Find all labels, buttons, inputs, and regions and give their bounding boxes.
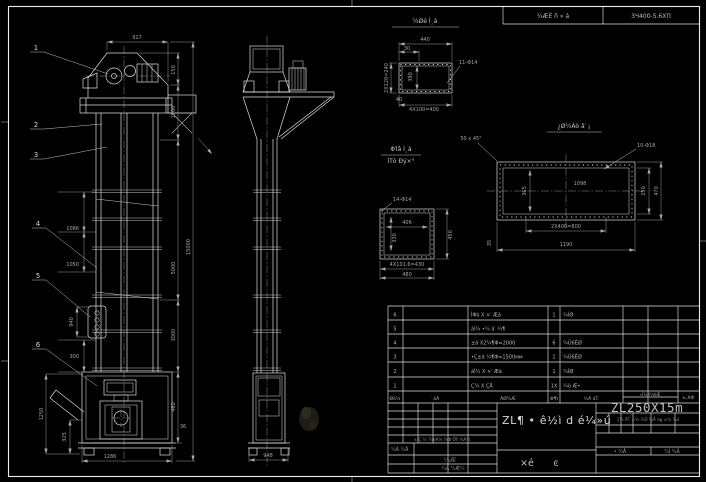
dim-a-30: 30 xyxy=(404,46,410,52)
table-row: 6 ÌΦò X ×′ Æá 1 ¼ÌØ xyxy=(393,312,573,319)
approval-stamp: ¼Æ xyxy=(444,456,457,464)
row3-no: 3 xyxy=(393,355,396,361)
balloon-3: 3 xyxy=(34,151,38,159)
detail-a-title: ½Øé Ì¸á xyxy=(413,18,438,25)
design-label: ¼Ã ¼Å xyxy=(391,446,409,453)
detail-b-title-1: ΦΊâ Ì¸á xyxy=(390,146,412,153)
sheet-label-1: • ¼Å xyxy=(614,448,627,455)
dim-150: 150 xyxy=(171,65,177,75)
col-header-name: ÃØ¼Æ xyxy=(500,395,516,402)
approval-stamp-2: ¼Ã ¼Æ¼ xyxy=(441,465,465,472)
dim-15000: 15000 xyxy=(186,239,192,255)
detail-b-title-2: ÌΤò Ðý×° xyxy=(387,158,414,165)
dim-a-4x100: 4X100=400 xyxy=(409,107,439,113)
cad-sheet: ¼ÆÈ ñ » á 3Ч400-5.6ΧΠ xyxy=(0,0,706,482)
dim-300: 300 xyxy=(69,354,79,360)
row1-qty: 1X xyxy=(551,384,558,390)
col-header-material: ¾Ã áΤ xyxy=(584,395,599,402)
dim-a-2x120: 2X120=240 xyxy=(384,63,390,93)
dim-a-440: 440 xyxy=(420,37,430,43)
row5-name: áÌ¼ •¼ á′ ¼¶ xyxy=(471,326,505,333)
row4-name: ±á X2¼¶Φ=2000 xyxy=(471,340,515,347)
row1-no: 1 xyxy=(393,384,396,390)
col-header-weight: »Ì¼X¼ÞÆ xyxy=(640,392,661,397)
balloon-2: 2 xyxy=(34,121,38,129)
title-block: ±ÏÇ ¼′ ¼ÞÁ¼ ¼Φ ÕÝ ¼Ã¼ ¼Ã ¼Å ¼Æ ¼Ã ¼Æ¼ ZL… xyxy=(388,400,699,473)
row6-qty: 1 xyxy=(552,313,555,319)
dim-1500: 1500 xyxy=(171,106,177,119)
drawing-subtitle-1: ×é xyxy=(520,458,534,469)
dim-325: 325 xyxy=(62,432,68,442)
table-row: 1 Ç¼ X ÇÅ 1X ¼ô Æ• xyxy=(393,383,580,390)
dim-a-holes: 11-Φ14 xyxy=(459,60,477,66)
table-row: 3 •Ç±á ¼¶Φ=1500мм 1 ¼Ü6ÊØ xyxy=(393,353,581,361)
watermark-stain xyxy=(299,407,319,431)
detail-flange-plate: ½Øé Ì¸á 440 30 2X120=240 390 40 4X100=40… xyxy=(384,18,477,113)
row2-material: ¼ÌØ xyxy=(563,368,573,375)
balloon-5: 5 xyxy=(36,272,40,280)
row5-no: 5 xyxy=(393,327,396,333)
row6-name: ÌΦò X ×′ Æá xyxy=(471,312,501,319)
drawing-title: ZL¶ • ê½ì d é¼»ú xyxy=(502,414,611,427)
table-row: 4 ±á X2¼¶Φ=2000 6 ¼Ü6ÊØ xyxy=(393,339,581,347)
dim-940: 940 xyxy=(69,317,75,327)
row3-qty: 1 xyxy=(552,355,555,361)
detail-casing-section: ¿Ø½Àò â′ ¡ 50 x 45° 10-Φ18 1098 365 250 … xyxy=(460,123,663,252)
front-view-dimensions: 917 150 1500 5000 3000 460 36 15000 1086… xyxy=(39,35,195,463)
balloon-1: 1 xyxy=(34,44,38,52)
dim-5000: 5000 xyxy=(171,262,177,275)
dim-1250: 1250 xyxy=(39,408,45,421)
dim-b-406: 406 xyxy=(402,220,412,226)
dim-948: 948 xyxy=(263,453,273,459)
row3-material: ¼Ü6ÊØ xyxy=(563,353,582,361)
dim-c-470: 470 xyxy=(654,186,660,196)
dim-b-holes: 14-Φ14 xyxy=(393,197,411,203)
row4-no: 4 xyxy=(393,341,396,347)
dim-c-chamfer: 50 x 45° xyxy=(460,136,482,142)
dim-460: 460 xyxy=(171,402,177,412)
row6-material: ¼ÌØ xyxy=(563,312,573,319)
row1-name: Ç¼ X ÇÅ xyxy=(471,383,493,390)
dim-a-390: 390 xyxy=(408,72,414,82)
dim-36: 36 xyxy=(180,424,186,430)
parts-table: Øò¼ ′ áÃ ÃØ¼Æ Φ¶ì ¾Ã áΤ »Ì¼X¼ÞÆ ±,XΦ 6 Ì… xyxy=(388,306,699,473)
row2-name: áÌ¼ X ×′ Æá xyxy=(471,368,502,375)
col-header-remark: ±,XΦ xyxy=(682,395,694,401)
revision-row: ±ÏÇ ¼′ ¼ÞÁ¼ ¼Φ ÕÝ ¼Ã¼ xyxy=(414,437,471,442)
detail-c-title: ¿Ø½Àò â′ ¡ xyxy=(558,123,591,130)
dim-c-365: 365 xyxy=(522,186,528,196)
dim-1050: 1050 xyxy=(66,262,79,268)
dim-b-480: 480 xyxy=(402,272,412,278)
drawing-model-number: ZL250X15m xyxy=(611,400,683,415)
dim-b-450: 450 xyxy=(448,230,454,240)
dim-c-1190: 1190 xyxy=(560,242,573,248)
dim-c-2x400: 2X400=800 xyxy=(551,224,581,230)
header-cell-2: 3Ч400-5.6ΧΠ xyxy=(631,13,671,20)
drawing-subtitle-2: ͼ xyxy=(553,458,558,469)
dim-1286: 1286 xyxy=(104,454,117,460)
col-header-no: Øò¼ xyxy=(390,395,401,402)
dim-917: 917 xyxy=(132,35,142,41)
row6-no: 6 xyxy=(393,313,396,319)
row2-no: 2 xyxy=(393,369,396,375)
cad-drawing-canvas: ¼ÆÈ ñ » á 3Ч400-5.6ΧΠ xyxy=(0,0,706,482)
dim-a-40: 40 xyxy=(396,97,402,103)
row2-qty: 1 xyxy=(552,369,555,375)
table-row: 2 áÌ¼ X ×′ Æá 1 ¼ÌØ xyxy=(393,368,573,375)
table-row: 5 áÌ¼ •¼ á′ ¼¶ xyxy=(393,326,505,333)
dim-b-4x101: 4X101.6=430 xyxy=(390,262,425,268)
dim-c-250: 250 xyxy=(641,186,647,196)
dim-3000: 3000 xyxy=(171,329,177,342)
balloon-6: 6 xyxy=(36,341,41,349)
header-band: ¼ÆÈ ñ » á 3Ч400-5.6ΧΠ xyxy=(503,7,699,25)
row3-name: •Ç±á ¼¶Φ=1500мм xyxy=(471,354,523,361)
dim-c-35: 35 xyxy=(487,240,493,246)
row4-material: ¼Ü6ÊØ xyxy=(563,339,582,347)
dim-c-holes: 10-Φ18 xyxy=(637,143,655,149)
sheet-label-2: ¼Ì ¼Å xyxy=(664,448,680,455)
dim-c-1098: 1098 xyxy=(574,181,587,187)
detail-square-plate: ΦΊâ Ì¸á ÌΤò Ðý×° 14-Φ14 406 330 450 4X10… xyxy=(380,146,454,280)
balloon-4: 4 xyxy=(36,220,41,228)
dim-1086: 1086 xyxy=(66,226,79,232)
side-view: 948 xyxy=(243,36,334,466)
mini-header-row: 1¼ ÃΤ ±¼ ¼Ü ¼Å ag ±¼ ¼ü xyxy=(617,417,680,422)
header-cell-1: ¼ÆÈ ñ » á xyxy=(537,12,570,20)
dim-b-330: 330 xyxy=(392,233,398,243)
col-header-qty: Φ¶ì xyxy=(550,395,558,402)
row1-material: ¼ô Æ• xyxy=(563,383,580,390)
col-header-code: ′ áÃ xyxy=(431,395,440,402)
row4-qty: 6 xyxy=(552,341,555,347)
